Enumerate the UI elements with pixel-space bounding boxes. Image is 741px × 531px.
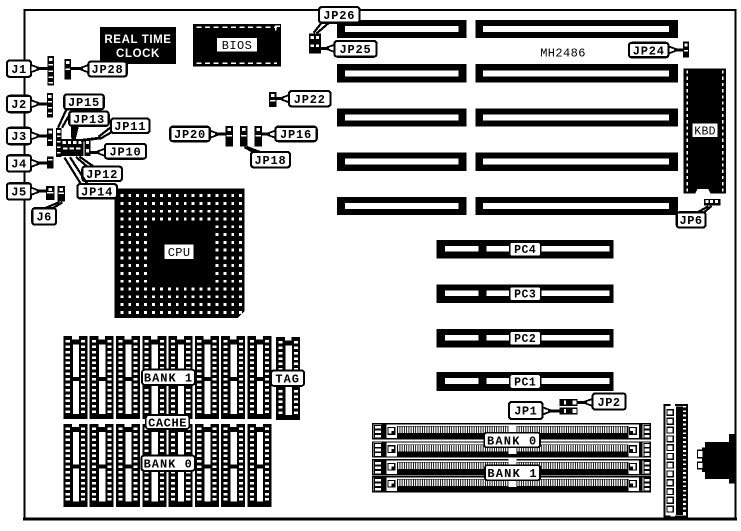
svg-text:BANK 1: BANK 1	[487, 467, 537, 481]
svg-text:CACHE: CACHE	[148, 417, 187, 431]
svg-text:BANK 1: BANK 1	[144, 372, 193, 386]
svg-text:PC3: PC3	[514, 289, 536, 302]
svg-text:MH2486: MH2486	[540, 47, 586, 61]
svg-text:JP28: JP28	[92, 63, 124, 77]
svg-text:PC2: PC2	[514, 333, 536, 346]
svg-text:CLOCK: CLOCK	[116, 48, 160, 60]
svg-text:JP15: JP15	[68, 96, 100, 110]
svg-text:J4: J4	[11, 158, 26, 172]
svg-text:JP25: JP25	[339, 43, 371, 57]
svg-text:JP18: JP18	[254, 154, 286, 168]
svg-text:JP10: JP10	[109, 146, 141, 160]
svg-text:JP2: JP2	[598, 396, 621, 410]
svg-text:BIOS: BIOS	[222, 39, 252, 53]
svg-text:TAG: TAG	[275, 373, 300, 387]
svg-text:J2: J2	[11, 98, 26, 112]
svg-text:JP14: JP14	[81, 185, 113, 199]
svg-text:JP22: JP22	[294, 93, 326, 107]
svg-text:JP11: JP11	[114, 120, 146, 134]
svg-text:JP16: JP16	[280, 128, 312, 142]
svg-text:CPU: CPU	[168, 246, 191, 260]
svg-text:PC1: PC1	[514, 376, 536, 389]
svg-text:KBD: KBD	[694, 126, 716, 139]
svg-text:BANK 0: BANK 0	[487, 434, 537, 448]
svg-text:JP20: JP20	[174, 128, 206, 142]
svg-text:J6: J6	[36, 211, 51, 225]
svg-text:JP12: JP12	[86, 168, 118, 182]
svg-text:BANK 0: BANK 0	[144, 458, 193, 472]
svg-text:J3: J3	[11, 130, 26, 144]
svg-text:PC4: PC4	[514, 244, 536, 257]
svg-text:JP1: JP1	[514, 405, 537, 419]
svg-text:JP26: JP26	[323, 9, 355, 23]
svg-text:J1: J1	[11, 63, 26, 77]
svg-text:JP6: JP6	[680, 214, 703, 228]
svg-text:REAL TIME: REAL TIME	[104, 34, 171, 46]
svg-text:JP13: JP13	[73, 113, 105, 127]
svg-text:JP24: JP24	[633, 44, 665, 58]
svg-text:J5: J5	[11, 186, 26, 200]
